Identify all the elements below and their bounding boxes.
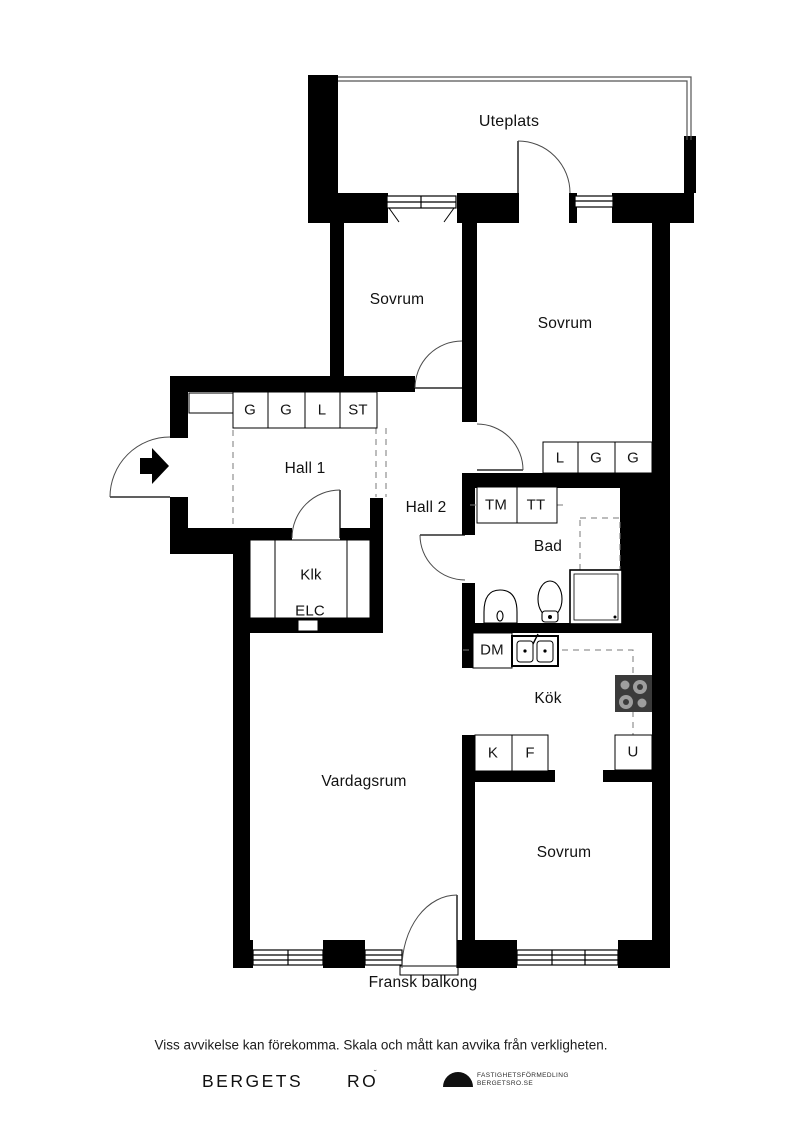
wall-segment — [308, 193, 388, 223]
room-label-bad: Bad — [534, 538, 562, 556]
room-label-sovrum-top-left: Sovrum — [370, 291, 425, 309]
wall-segment — [323, 940, 365, 968]
appliance-label-u: U — [627, 744, 638, 761]
appliance-label-dm: DM — [480, 642, 504, 659]
window — [365, 950, 402, 965]
wall-segment — [684, 136, 696, 193]
window — [387, 196, 456, 222]
appliance-label-tm: TM — [485, 497, 507, 514]
floorplan-page: Uteplats Sovrum Sovrum Hall 1 Hall 2 Klk… — [0, 0, 800, 1131]
stove — [615, 675, 652, 712]
room-label-sovrum-top-right: Sovrum — [538, 315, 593, 333]
logo-text-bergets: BERGETS — [202, 1071, 303, 1092]
room-label-klk: Klk — [300, 567, 321, 584]
wall-segment — [457, 940, 517, 968]
room-label-uteplats: Uteplats — [479, 113, 539, 131]
wall-segment — [462, 623, 652, 633]
wall-segment — [620, 488, 652, 623]
entrance-arrow-icon — [140, 448, 169, 484]
door-french-balcony — [402, 895, 457, 968]
wall-segment — [462, 735, 475, 968]
wall-segment — [612, 193, 694, 223]
room-label-sovrum-bottom: Sovrum — [537, 844, 592, 862]
logo-trademark: ˘ — [374, 1069, 377, 1078]
door-bedroom-right — [477, 424, 523, 470]
walls — [170, 75, 696, 968]
logo-tagline-line1: FASTIGHETSFÖRMEDLING — [477, 1072, 569, 1079]
wall-segment — [618, 940, 670, 968]
door-klk — [292, 490, 340, 538]
closet-label: G — [590, 450, 602, 467]
appliance-label-f: F — [525, 745, 534, 762]
wall-segment — [652, 223, 670, 940]
closet-label: ST — [348, 402, 368, 419]
wall-segment — [462, 473, 475, 535]
shower — [570, 570, 622, 624]
kitchen-sink — [512, 634, 558, 666]
closet-label: G — [627, 450, 639, 467]
wall-segment — [233, 940, 253, 968]
wall-segment — [233, 540, 250, 968]
wall-segment — [370, 498, 383, 633]
shower-zone-dashed — [580, 518, 620, 570]
disclaimer-text: Viss avvikelse kan förekomma. Skala och … — [155, 1038, 608, 1053]
wall-segment — [170, 376, 188, 438]
door-uteplats — [518, 141, 570, 193]
window — [575, 196, 613, 207]
door-bedroom-left — [415, 341, 462, 388]
wall-segment — [462, 391, 477, 422]
door-bathroom — [420, 535, 465, 580]
wall-segment — [240, 528, 292, 540]
toilet — [538, 581, 562, 622]
appliance-label-tt: TT — [527, 497, 546, 514]
window — [253, 950, 323, 965]
window — [517, 950, 618, 965]
entry-shelf — [189, 393, 233, 413]
wall-segment — [170, 376, 415, 392]
room-label-hall1: Hall 1 — [285, 460, 326, 478]
room-label-vardagsrum: Vardagsrum — [321, 773, 406, 791]
wall-segment — [462, 770, 555, 782]
wall-segment — [603, 770, 652, 782]
closet-label: G — [280, 402, 292, 419]
room-label-fransk-balkong: Fransk balkong — [369, 974, 478, 992]
room-label-elc: ELC — [295, 603, 325, 620]
wall-segment — [462, 473, 652, 488]
floor-plan — [0, 0, 800, 1131]
logo-tagline-line2: BERGETSRO.SE — [477, 1080, 533, 1087]
closet-label: L — [318, 402, 327, 419]
bathroom-sink — [484, 590, 517, 623]
wall-segment — [330, 223, 344, 387]
elc-cabinet — [298, 620, 318, 631]
closet-label: L — [556, 450, 565, 467]
wall-segment — [462, 195, 477, 391]
closet-label: G — [244, 402, 256, 419]
appliance-label-k: K — [488, 745, 498, 762]
room-label-hall2: Hall 2 — [406, 499, 447, 517]
room-label-kok: Kök — [534, 690, 561, 708]
